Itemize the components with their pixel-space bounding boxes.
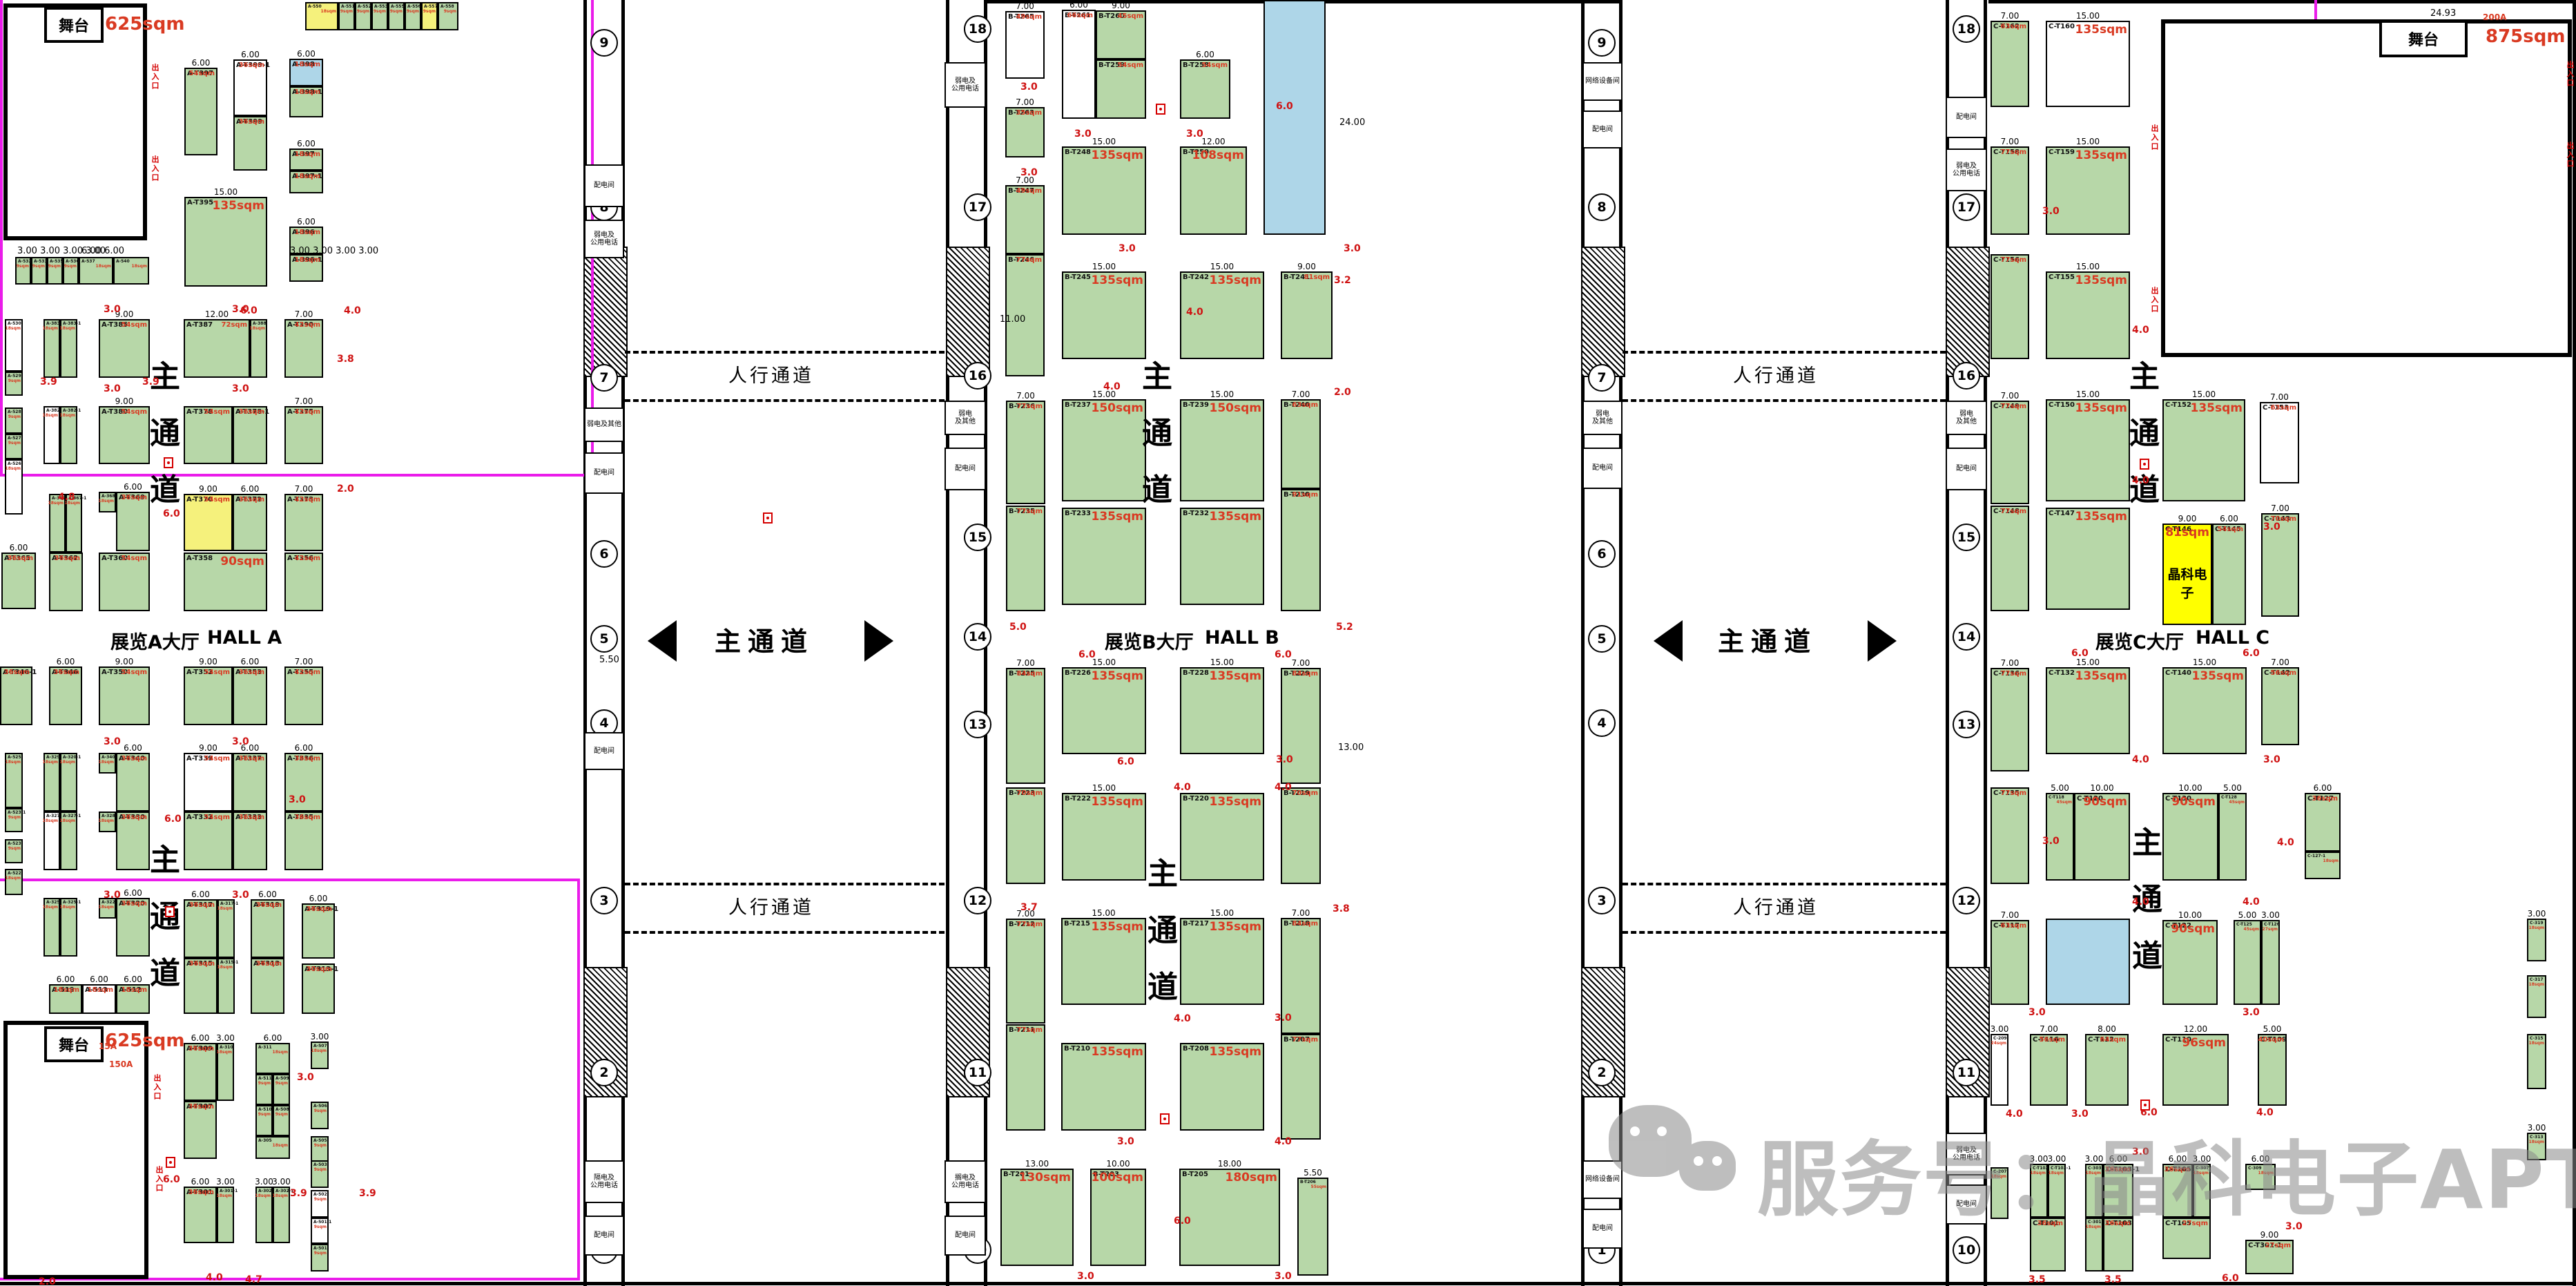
booth-B-T239[interactable]: 15.00B-T239150sqm: [1180, 399, 1264, 501]
booth-A-T362[interactable]: A-T36236sqm: [49, 553, 83, 611]
booth-B-T258[interactable]: 6.00B-T25854sqm: [1180, 59, 1230, 119]
booth-dim: 3.00: [2030, 1154, 2049, 1164]
booth-A-398-1[interactable]: A-398-118sqm: [289, 86, 323, 117]
booth-B-T250[interactable]: 12.00B-T250108sqm: [1180, 146, 1247, 235]
booth-B-T207[interactable]: B-T20777sqm: [1281, 1034, 1321, 1140]
booth-area: 42sqm: [295, 408, 320, 416]
booth-A-533[interactable]: A-5339sqm: [31, 257, 47, 285]
booth-B-T211[interactable]: B-T21177sqm: [1006, 1024, 1045, 1131]
booth-id: A-T395: [187, 199, 213, 207]
booth-area: 135sqm: [1210, 510, 1262, 524]
booth-id: B-T206: [1300, 1180, 1316, 1184]
booth-unlabeled[interactable]: [2046, 919, 2130, 1005]
booth-B-T260[interactable]: 9.00B-T26045sqm: [1096, 10, 1146, 59]
axis-number-9: 9: [590, 29, 618, 57]
booth-dim: 15.00: [2192, 390, 2216, 399]
booth-area: 9sqm: [17, 264, 29, 269]
booth-B-T203[interactable]: 10.00B-T203100sqm: [1090, 1169, 1146, 1266]
booth-B-T247[interactable]: 7.00B-T24749sqm: [1005, 185, 1045, 254]
booth-C-T130[interactable]: 10.00C-T13090sqm: [2162, 793, 2218, 881]
booth-dim: 7.00: [1292, 390, 1310, 399]
dimension-black: 11.00: [1000, 314, 1025, 325]
booth-A-T319-1[interactable]: 6.00A-T319-136sqm: [302, 903, 335, 959]
booth-A-T375[interactable]: 7.00A-T37542sqm: [284, 406, 323, 464]
booth-C-T135[interactable]: C-T13577sqm: [1991, 787, 2029, 884]
booth-A-529[interactable]: A-5299sqm: [5, 372, 23, 396]
booth-B-T225[interactable]: 7.00B-T22584sqm: [1006, 668, 1045, 784]
booth-area: 27sqm: [2265, 1242, 2291, 1249]
booth-C-T146[interactable]: 9.00C-T14681sqm晶科电子: [2162, 524, 2212, 625]
pedestrian-passage-label: 人行通道: [728, 361, 814, 387]
booth-B-T229[interactable]: 7.00B-T22984sqm: [1281, 668, 1321, 784]
booth-id: C-T132: [2049, 669, 2075, 677]
dimension-red: 4.0: [2256, 1107, 2274, 1118]
booth-A-T370[interactable]: 9.00A-T37054sqm: [184, 494, 233, 551]
booth-unlabeled[interactable]: [1263, 0, 1326, 235]
booth-B-T206[interactable]: 5.50B-T20655sqm: [1297, 1178, 1328, 1276]
dimension-red: 3.0: [1074, 128, 1092, 140]
booth-C-303[interactable]: 3.00C-30318sqm: [2085, 1164, 2103, 1218]
booth-id: A-320-1: [63, 755, 81, 760]
booth-C-T142[interactable]: 7.00C-T14256sqm: [2261, 667, 2299, 745]
booth-id: A-528: [8, 410, 21, 414]
booth-A-556[interactable]: A-5569sqm: [405, 2, 421, 30]
booth-A-T319[interactable]: 6.00A-T31936sqm: [251, 899, 284, 958]
booth-C-T149[interactable]: 7.00C-T14977sqm: [1991, 401, 2029, 504]
booth-A-525[interactable]: A-52518sqm: [5, 753, 23, 808]
booth-area: 84sqm: [1292, 920, 1318, 928]
booth-A-519[interactable]: 6.00A-51918sqm: [49, 984, 82, 1014]
booth-C-T136[interactable]: 7.00C-T13677sqm: [1991, 668, 2029, 771]
booth-C-T155[interactable]: 15.00C-T155135sqm: [2046, 271, 2130, 359]
booth-A-T309[interactable]: 6.00A-T30936sqm: [184, 1043, 217, 1101]
booth-A-501[interactable]: A-5019sqm: [311, 1244, 329, 1271]
booth-C-T301-1[interactable]: 9.00C-T301-127sqm: [2245, 1240, 2294, 1274]
booth-A-550[interactable]: A-55018sqm: [305, 2, 338, 30]
booth-A-510[interactable]: A-5109sqm: [255, 1105, 273, 1136]
booth-dim: 7.00: [1016, 97, 1034, 107]
dimension-red: 3.0: [1186, 128, 1203, 140]
booth-area: 18sqm: [321, 9, 336, 14]
booth-dim: 15.00: [1092, 908, 1115, 918]
booth-A-T385[interactable]: 9.00A-T38554sqm: [99, 319, 150, 378]
booth-B-T228[interactable]: 15.00B-T228135sqm: [1180, 667, 1264, 754]
booth-C-T127[interactable]: 6.00C-T12736sqm: [2305, 793, 2341, 852]
booth-area: 135sqm: [2191, 401, 2243, 415]
booth-C-T103-1[interactable]: 6.00C-T103-136sqm: [2103, 1164, 2133, 1218]
booth-area: 18sqm: [250, 326, 265, 331]
booth-A-T332[interactable]: A-T33254sqm: [184, 812, 233, 870]
dimension-red: 3.7: [1020, 902, 1038, 913]
booth-A-506[interactable]: A-5069sqm: [311, 1102, 329, 1129]
axis-number-17: 17: [1953, 193, 1980, 221]
booth-area: 9sqm: [444, 9, 456, 14]
booth-id: A-325: [46, 900, 60, 905]
booth-A-382[interactable]: A-38218sqm: [43, 406, 60, 464]
booth-area: 36sqm: [2105, 1166, 2131, 1173]
booth-C-127-1[interactable]: C-127-118sqm: [2305, 852, 2341, 879]
booth-C-209[interactable]: 3.00C-20924sqm: [1991, 1034, 2008, 1106]
service-room: 网络设备间: [1582, 1160, 1623, 1199]
booth-B-T217[interactable]: 15.00B-T217135sqm: [1180, 918, 1264, 1005]
booth-C-T156[interactable]: C-T15677sqm: [1991, 254, 2029, 359]
booth-area: 36sqm: [122, 494, 147, 501]
booth-A-558[interactable]: A-5589sqm: [438, 2, 458, 30]
booth-A-T317[interactable]: 6.00A-T31736sqm: [184, 899, 217, 958]
booth-dim: 5.00: [2238, 910, 2257, 920]
booth-id: A-527: [8, 436, 21, 441]
booth-A-501-1[interactable]: A-501-19sqm: [311, 1218, 329, 1244]
booth-area: 36sqm: [307, 905, 332, 913]
booth-area: 56sqm: [2271, 669, 2296, 677]
booth-B-T208[interactable]: B-T208135sqm: [1180, 1043, 1264, 1131]
booth-A-T397[interactable]: 6.00A-T39754sqm: [184, 68, 217, 155]
dimension-red: 3.0: [1077, 1271, 1094, 1282]
booth-C-207[interactable]: C-20718sqm: [1991, 1167, 2008, 1219]
booth-B-T237[interactable]: 15.00B-T237150sqm: [1062, 399, 1146, 501]
booth-A-T387[interactable]: 12.00A-T38772sqm: [184, 319, 250, 378]
dimension-red: 3.0: [289, 794, 306, 805]
booth-dim: 15.00: [2076, 390, 2100, 399]
booth-id: A-529: [8, 374, 21, 378]
booth-A-301-1[interactable]: 3.00A-301-118sqm: [217, 1187, 234, 1243]
booth-A-540[interactable]: A-54018sqm: [113, 257, 149, 285]
booth-C-T102-1[interactable]: 3.00C-T102-118sqm: [2048, 1164, 2066, 1218]
booth-area: 36sqm: [239, 61, 264, 69]
booth-A-340-1[interactable]: A-340-118sqm: [99, 753, 116, 774]
dimension-red: 4.0: [344, 305, 361, 316]
booth-C-307[interactable]: 3.00C-30718sqm: [2193, 1164, 2211, 1218]
booth-A-505[interactable]: A-5059sqm: [311, 1136, 329, 1164]
booth-dim: 3.00: [2085, 1154, 2104, 1164]
booth-B-T263[interactable]: 7.00B-T26335sqm: [1005, 107, 1045, 157]
booth-C-T152[interactable]: 15.00C-T152135sqm: [2162, 399, 2245, 501]
booth-C-T126[interactable]: 3.00C-T12627sqm: [2261, 920, 2280, 1005]
pedestrian-dash-line: [625, 351, 945, 354]
main-aisle-vertical-label: 主 通 道: [1146, 846, 1179, 1016]
booth-C-T109[interactable]: 5.00C-T10940sqm: [2258, 1034, 2287, 1106]
booth-A-328[interactable]: A-32818sqm: [99, 812, 116, 832]
booth-dim: 6.00: [57, 975, 75, 984]
hall-label-cn: 展览C大厅: [2095, 627, 2184, 654]
entrance-exit-label: 出入口: [2149, 124, 2160, 151]
booth-A-327-1[interactable]: A-327-118sqm: [60, 812, 77, 870]
booth-C-T132[interactable]: 15.00C-T132135sqm: [2046, 667, 2130, 754]
booth-C-301[interactable]: C-30118sqm: [2085, 1218, 2103, 1271]
booth-C-T150[interactable]: 15.00C-T150135sqm: [2046, 399, 2130, 501]
booth-A-T365[interactable]: 6.00A-T36536sqm: [1, 553, 36, 609]
booth-A-T390[interactable]: 7.00A-T39042sqm: [284, 319, 323, 378]
booth-B-T235[interactable]: B-T23577sqm: [1006, 506, 1045, 611]
booth-dim: 9.00: [115, 657, 134, 666]
booth-dim: 3.00: [2048, 1154, 2066, 1164]
booth-area: 36sqm: [189, 960, 215, 968]
booth-B-T236[interactable]: 7.00B-T23677sqm: [1006, 401, 1045, 504]
booth-C-T145[interactable]: 6.00C-T14554sqm: [2212, 524, 2246, 625]
booth-A-368[interactable]: A-36818sqm: [99, 492, 116, 512]
stage: 舞台: [44, 1026, 104, 1062]
booth-B-T261[interactable]: 6.00B-T26166sqm: [1062, 10, 1096, 119]
booth-A-T346-1[interactable]: A-T346-136sqm: [0, 666, 32, 725]
booth-area: 18sqm: [99, 818, 114, 823]
booth-B-T240[interactable]: 7.00B-T24063sqm: [1281, 399, 1321, 489]
booth-A-503[interactable]: A-5039sqm: [311, 1160, 329, 1188]
booth-dim: 10.00: [2178, 910, 2202, 920]
booth-A-T337[interactable]: 6.00A-T33736sqm: [233, 753, 267, 812]
booth-A-T380[interactable]: 9.00A-T38054sqm: [99, 406, 150, 464]
booth-A-327[interactable]: A-32718sqm: [43, 812, 60, 870]
booth-area: 54sqm: [1118, 61, 1143, 69]
booth-area: 9sqm: [407, 9, 419, 14]
booth-id: B-T222: [1065, 795, 1091, 803]
booth-C-313[interactable]: 3.00C-31318sqm: [2527, 1133, 2546, 1160]
booth-A-T330[interactable]: A-T33036sqm: [116, 812, 150, 870]
booth-C-T120[interactable]: 10.00C-T12090sqm: [2074, 793, 2130, 881]
axis-number-12: 12: [1953, 887, 1980, 914]
booth-B-T201[interactable]: 13.00B-T201130sqm: [1000, 1169, 1074, 1266]
booth-area: 90sqm: [2083, 795, 2127, 809]
booth-A-522[interactable]: A-52218sqm: [5, 869, 23, 895]
booth-C-T125[interactable]: 5.00C-T12545sqm: [2234, 920, 2261, 1005]
booth-A-507[interactable]: 3.00A-50718sqm: [311, 1042, 329, 1069]
booth-C-T158[interactable]: 7.00C-T15877sqm: [1991, 146, 2029, 235]
booth-C-T147[interactable]: C-T147135sqm: [2046, 508, 2130, 610]
booth-id: A-382-1: [63, 408, 81, 413]
booth-B-T232[interactable]: B-T232135sqm: [1180, 508, 1264, 605]
booth-A-T399-1[interactable]: 6.00A-T399-136sqm: [233, 59, 267, 116]
booth-A-397-1[interactable]: A-397-118sqm: [289, 171, 323, 193]
booth-A-388[interactable]: A-38818sqm: [250, 319, 267, 378]
booth-area: 54sqm: [122, 321, 147, 329]
booth-C-317[interactable]: C-31718sqm: [2527, 975, 2546, 1018]
dimension-red: 3.8: [337, 354, 354, 365]
booth-A-535[interactable]: A-5359sqm: [47, 257, 63, 285]
booth-dim: 7.00: [2001, 910, 2020, 920]
booth-C-319[interactable]: 3.00C-31918sqm: [2527, 919, 2546, 961]
booth-C-T122[interactable]: 10.00C-T12290sqm: [2162, 920, 2218, 1005]
booth-A-302[interactable]: 3.00A-30218sqm: [255, 1187, 273, 1243]
booth-A-T301[interactable]: 6.00A-T30136sqm: [184, 1187, 217, 1243]
booth-A-329[interactable]: A-32918sqm: [43, 753, 60, 812]
booth-A-T307[interactable]: A-T30736sqm: [184, 1101, 217, 1159]
booth-A-322[interactable]: A-32218sqm: [99, 898, 116, 919]
booth-A-317-1[interactable]: A-317-118sqm: [217, 899, 235, 958]
booth-A-526[interactable]: A-52618sqm: [5, 459, 23, 515]
booth-A-305[interactable]: A-30518sqm: [255, 1136, 290, 1159]
service-room: 配电间: [584, 452, 624, 494]
booth-C-T140[interactable]: 15.00C-T140135sqm: [2162, 667, 2247, 754]
booth-area: 18sqm: [6, 466, 21, 471]
axis-number-14: 14: [1953, 623, 1980, 651]
booth-dim: 5.00: [2051, 783, 2069, 793]
booth-C-309[interactable]: 6.00C-30918sqm: [2245, 1164, 2276, 1190]
booth-A-T356[interactable]: A-T35642sqm: [284, 553, 323, 611]
booth-A-396-1[interactable]: A-396-118sqm: [289, 254, 323, 282]
wall-hatch: [583, 247, 628, 377]
forum-zone-line: [0, 0, 3, 477]
booth-area: 135sqm: [1092, 669, 1144, 683]
power-label: 15A: [99, 1042, 117, 1051]
booth-A-557[interactable]: A-5579sqm: [421, 2, 438, 30]
booth-B-T223[interactable]: B-T22370sqm: [1006, 787, 1045, 884]
dimension-red: 3.0: [2132, 1146, 2149, 1158]
booth-A-T378[interactable]: A-T37854sqm: [184, 406, 233, 464]
booth-area: 18sqm: [2049, 1171, 2064, 1175]
booth-C-T103[interactable]: C-T10336sqm: [2103, 1218, 2133, 1271]
booth-B-T205[interactable]: 18.00B-T205180sqm: [1179, 1169, 1280, 1266]
booth-A-527[interactable]: A-5279sqm: [5, 434, 23, 459]
booth-A-302-1[interactable]: 3.00A-302-118sqm: [273, 1187, 290, 1243]
booth-B-T230[interactable]: B-T23091sqm: [1281, 489, 1321, 611]
booth-A-T358[interactable]: A-T35890sqm: [184, 553, 267, 611]
booth-A-T353[interactable]: 6.00A-T35336sqm: [233, 666, 267, 725]
booth-area: 9sqm: [314, 1167, 327, 1172]
booth-A-T350[interactable]: 9.00A-T35054sqm: [99, 666, 150, 725]
booth-A-512[interactable]: 6.00A-51218sqm: [116, 984, 150, 1014]
booth-area: 18sqm: [43, 413, 58, 418]
booth-C-T110[interactable]: 12.00C-T11096sqm: [2162, 1034, 2229, 1106]
booth-B-T248[interactable]: 15.00B-T248135sqm: [1062, 146, 1146, 235]
booth-A-523[interactable]: A-5239sqm: [5, 839, 23, 863]
dimension-red: 3.0: [232, 890, 249, 901]
booth-area: 18sqm: [295, 256, 320, 264]
booth-B-T219[interactable]: B-T21970sqm: [1281, 787, 1321, 884]
booth-A-T346[interactable]: 6.00A-T34636sqm: [49, 666, 82, 725]
booth-id: A-510: [258, 1107, 272, 1112]
booth-area: 150sqm: [1092, 401, 1144, 415]
booth-C-T102[interactable]: 3.00C-T10218sqm: [2030, 1164, 2048, 1218]
booth-A-508[interactable]: A-5089sqm: [273, 1105, 290, 1136]
booth-dim: 15.00: [1092, 783, 1116, 793]
booth-B-T241[interactable]: 9.00B-T24181sqm: [1281, 271, 1333, 359]
booth-A-383[interactable]: A-38318sqm: [43, 319, 60, 378]
booth-area: 18sqm: [2086, 1225, 2101, 1229]
dimension-red: 3.0: [297, 1072, 314, 1083]
booth-A-T369[interactable]: 6.00A-T36936sqm: [116, 492, 150, 551]
booth-C-T112[interactable]: 8.00C-T11264sqm: [2085, 1034, 2129, 1106]
booth-A-T320[interactable]: 6.00A-T32036sqm: [116, 898, 150, 957]
booth-area: 54sqm: [122, 408, 147, 416]
booth-C-T128[interactable]: 5.00C-T12845sqm: [2218, 793, 2247, 881]
booth-C-T116[interactable]: 7.00C-T11656sqm: [2030, 1034, 2068, 1106]
booth-A-315-1[interactable]: A-315-118sqm: [217, 958, 235, 1014]
booth-area: 18sqm: [43, 760, 58, 765]
booth-A-T372[interactable]: 6.00A-T37236sqm: [233, 494, 267, 551]
booth-A-310[interactable]: 3.00A-31018sqm: [217, 1043, 234, 1101]
booth-A-T395[interactable]: 15.00A-T395135sqm: [184, 197, 267, 287]
booth-C-T105-1[interactable]: 6.00C-T105-136sqm: [2162, 1164, 2193, 1218]
booth-B-T259[interactable]: B-T25954sqm: [1096, 59, 1146, 119]
booth-A-T360[interactable]: A-T36054sqm: [99, 553, 150, 611]
booth-A-523-1[interactable]: A-523-19sqm: [5, 808, 23, 832]
booth-C-T101[interactable]: C-T10136sqm: [2030, 1218, 2066, 1271]
forum-zone-line: [0, 879, 580, 881]
booth-area: 36sqm: [239, 408, 264, 416]
booth-A-T315[interactable]: A-T31536sqm: [184, 958, 217, 1014]
booth-area: 18sqm: [2031, 1171, 2046, 1175]
booth-B-T226[interactable]: 15.00B-T226135sqm: [1062, 667, 1146, 754]
booth-B-T212[interactable]: 7.00B-T21277sqm: [1006, 919, 1045, 1024]
dimension-red: 3.0: [104, 383, 121, 394]
booth-dim: 15.00: [2193, 658, 2216, 667]
booth-A-552[interactable]: A-5529sqm: [355, 2, 371, 30]
booth-C-T148[interactable]: C-T14877sqm: [1991, 506, 2029, 611]
booth-B-T265[interactable]: 7.00B-T26549sqm: [1005, 11, 1045, 79]
booth-A-511[interactable]: A-5119sqm: [255, 1074, 273, 1105]
booth-A-555[interactable]: A-5559sqm: [388, 2, 405, 30]
booth-B-T222[interactable]: 15.00B-T222135sqm: [1062, 793, 1146, 881]
axis-number-6: 6: [1588, 540, 1616, 568]
booth-A-T333[interactable]: A-T33336sqm: [233, 812, 267, 870]
booth-A-T335[interactable]: A-T33536sqm: [284, 812, 323, 870]
booth-A-397[interactable]: 6.00A-39718sqm: [289, 148, 323, 171]
booth-C-T160[interactable]: 15.00C-T160135sqm: [2046, 21, 2130, 107]
booth-A-T339[interactable]: 9.00A-T33954sqm: [184, 753, 233, 812]
booth-dim: 15.00: [1210, 908, 1234, 918]
booth-C-315[interactable]: C-31518sqm: [2527, 1034, 2546, 1089]
booth-A-532[interactable]: A-5329sqm: [15, 257, 31, 285]
booth-A-551[interactable]: A-5519sqm: [338, 2, 355, 30]
booth-area: 135sqm: [1092, 920, 1144, 934]
booth-A-536[interactable]: A-5369sqm: [63, 257, 79, 285]
booth-B-T215[interactable]: 15.00B-T215135sqm: [1061, 918, 1146, 1005]
booth-A-530[interactable]: A-53018sqm: [5, 319, 23, 372]
booth-B-T233[interactable]: B-T233135sqm: [1062, 508, 1146, 605]
booth-dim: 15.00: [2076, 262, 2100, 271]
booth-A-383-1[interactable]: A-383-118sqm: [60, 319, 77, 378]
booth-C-T159[interactable]: 15.00C-T159135sqm: [2046, 146, 2130, 235]
booth-A-537[interactable]: A-53718sqm: [79, 257, 113, 285]
booth-B-T245[interactable]: 15.00B-T245135sqm: [1062, 271, 1146, 359]
booth-A-398[interactable]: 6.00A-39818sqm: [289, 59, 323, 86]
dimension-red: 5.2: [1336, 622, 1353, 633]
booth-A-T352[interactable]: 9.00A-T35254sqm: [184, 666, 233, 725]
booth-A-T373[interactable]: 7.00A-T37342sqm: [284, 494, 323, 551]
dimension-red: 6.0: [1117, 756, 1134, 767]
dimension-red: 3.8: [1333, 903, 1350, 914]
booth-A-T340[interactable]: 6.00A-T34036sqm: [116, 753, 150, 812]
booth-B-T220[interactable]: B-T220135sqm: [1180, 793, 1264, 881]
dimension-red: 4.0: [2132, 325, 2149, 336]
booth-A-528[interactable]: A-5289sqm: [5, 407, 23, 434]
booth-A-T378-1[interactable]: A-T378-136sqm: [233, 406, 267, 464]
booth-A-T313-1[interactable]: A-T313-130sqm: [302, 963, 335, 1014]
booth-area: 135sqm: [2075, 510, 2128, 524]
booth-C-T153[interactable]: 7.00C-T15363sqm: [2260, 402, 2299, 483]
booth-area: 36sqm: [122, 900, 147, 908]
booth-A-320-1[interactable]: A-320-118sqm: [60, 753, 77, 812]
booth-A-325-1[interactable]: A-325-118sqm: [60, 898, 77, 957]
booth-C-T162[interactable]: 7.00C-T16263sqm: [1991, 21, 2029, 107]
booth-A-382-1[interactable]: A-382-118sqm: [60, 406, 77, 464]
booth-C-T105[interactable]: C-T10527sqm: [2162, 1218, 2211, 1259]
booth-C-T117[interactable]: 7.00C-T11763sqm: [1991, 920, 2029, 1005]
booth-A-502[interactable]: A-5029sqm: [311, 1190, 329, 1218]
booth-A-509[interactable]: A-5099sqm: [273, 1074, 290, 1105]
booth-A-T355[interactable]: 7.00A-T35542sqm: [284, 666, 323, 725]
booth-A-311[interactable]: 6.00A-31118sqm: [255, 1043, 290, 1074]
booth-dim: 7.00: [2270, 392, 2289, 402]
service-room: 配电间: [1946, 1184, 1987, 1225]
booth-area: 81sqm: [1304, 273, 1330, 281]
booth-A-325[interactable]: A-32518sqm: [43, 898, 60, 957]
booth-B-T210[interactable]: B-T210135sqm: [1061, 1043, 1146, 1131]
booth-A-T399[interactable]: A-T39936sqm: [233, 116, 267, 171]
booth-A-513[interactable]: 6.00A-51318sqm: [82, 984, 116, 1014]
dimension-red: 3.0: [104, 304, 121, 315]
booth-A-T313[interactable]: A-T31336sqm: [251, 958, 284, 1014]
booth-A-553[interactable]: A-5539sqm: [371, 2, 388, 30]
